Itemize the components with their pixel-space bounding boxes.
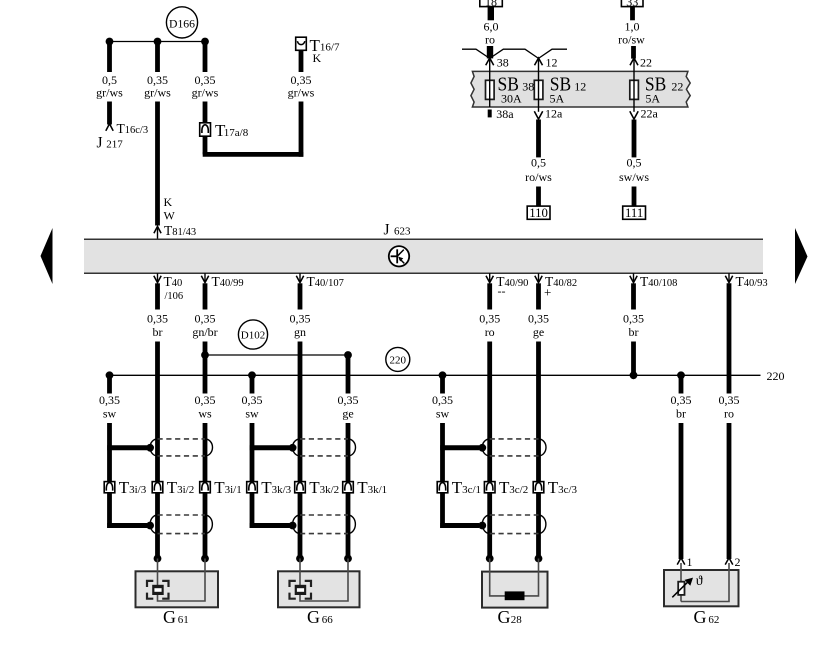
svg-text:/106: /106 <box>165 291 184 302</box>
svg-text:ro: ro <box>485 325 495 339</box>
svg-text:12a: 12a <box>545 107 563 121</box>
svg-text:+: + <box>544 284 551 299</box>
svg-text:T40/108: T40/108 <box>640 274 677 289</box>
svg-text:0,35: 0,35 <box>290 312 311 326</box>
svg-text:gr/ws: gr/ws <box>192 85 219 99</box>
svg-text:1,0: 1,0 <box>625 20 640 34</box>
svg-text:12: 12 <box>574 79 586 93</box>
svg-text:16/7: 16/7 <box>320 42 340 54</box>
svg-text:110: 110 <box>529 206 548 220</box>
svg-text:br: br <box>153 325 163 339</box>
svg-text:J: J <box>384 222 390 239</box>
svg-text:66: 66 <box>322 614 334 626</box>
svg-text:62: 62 <box>708 614 719 626</box>
svg-text:0,35: 0,35 <box>671 393 692 407</box>
svg-text:623: 623 <box>394 226 411 238</box>
svg-text:5A: 5A <box>645 91 660 105</box>
svg-text:38a: 38a <box>496 107 514 121</box>
svg-text:T40/107: T40/107 <box>307 274 344 289</box>
svg-text:220: 220 <box>767 369 785 383</box>
svg-text:0,35: 0,35 <box>479 312 500 326</box>
svg-text:3i/1: 3i/1 <box>225 484 242 496</box>
svg-text:5A: 5A <box>550 91 565 105</box>
svg-text:217: 217 <box>106 139 123 151</box>
svg-text:sw: sw <box>245 407 259 421</box>
svg-text:0,35: 0,35 <box>432 393 453 407</box>
svg-text:T16c/3: T16c/3 <box>117 121 149 136</box>
svg-text:ws: ws <box>198 407 212 421</box>
svg-text:0,35: 0,35 <box>623 312 644 326</box>
svg-text:br: br <box>676 407 686 421</box>
svg-text:sw/ws: sw/ws <box>619 170 649 184</box>
svg-text:ro/sw: ro/sw <box>618 33 645 47</box>
svg-text:gr/ws: gr/ws <box>288 85 315 99</box>
svg-text:G: G <box>163 607 176 627</box>
svg-text:6,0: 6,0 <box>484 20 499 34</box>
svg-text:G: G <box>307 607 320 627</box>
svg-text:12: 12 <box>546 55 558 69</box>
svg-text:gr/ws: gr/ws <box>96 85 123 99</box>
svg-text:0,35: 0,35 <box>99 393 120 407</box>
svg-text:ge: ge <box>342 407 353 421</box>
svg-text:0,35: 0,35 <box>147 312 168 326</box>
svg-text:3c/3: 3c/3 <box>558 484 577 496</box>
svg-text:2: 2 <box>735 555 741 569</box>
svg-text:T81/43: T81/43 <box>164 223 196 238</box>
svg-text:22: 22 <box>671 79 683 93</box>
svg-text:3k/1: 3k/1 <box>368 484 388 496</box>
svg-text:ro: ro <box>485 33 495 47</box>
svg-text:0,35: 0,35 <box>338 393 359 407</box>
svg-text:gr/ws: gr/ws <box>144 85 171 99</box>
svg-text:G: G <box>498 607 511 627</box>
svg-text:D166: D166 <box>169 16 195 30</box>
svg-text:K: K <box>164 195 173 209</box>
svg-text:D102: D102 <box>241 330 265 342</box>
svg-text:0,35: 0,35 <box>195 312 216 326</box>
svg-text:28: 28 <box>511 614 523 626</box>
svg-text:38: 38 <box>522 79 534 93</box>
svg-text:sw: sw <box>103 407 117 421</box>
svg-text:1: 1 <box>687 555 693 569</box>
svg-text:gn: gn <box>294 325 306 339</box>
svg-text:61: 61 <box>178 614 189 626</box>
svg-text:30A: 30A <box>501 91 522 105</box>
svg-text:sw: sw <box>436 407 450 421</box>
svg-text:--: -- <box>498 284 506 298</box>
svg-text:gn/br: gn/br <box>192 325 217 339</box>
svg-text:T40/93: T40/93 <box>736 274 768 289</box>
svg-text:3c/1: 3c/1 <box>462 484 481 496</box>
svg-text:K: K <box>313 51 322 65</box>
svg-text:ge: ge <box>533 325 544 339</box>
svg-text:22a: 22a <box>641 107 659 121</box>
svg-text:220: 220 <box>390 355 407 367</box>
svg-text:ϑ: ϑ <box>696 574 703 589</box>
svg-text:111: 111 <box>625 206 643 220</box>
svg-text:T40: T40 <box>164 274 183 289</box>
svg-text:0,5: 0,5 <box>531 156 546 170</box>
svg-text:0,35: 0,35 <box>528 312 549 326</box>
svg-text:0,35: 0,35 <box>242 393 263 407</box>
svg-text:0,35: 0,35 <box>719 393 740 407</box>
svg-text:3k/2: 3k/2 <box>320 484 340 496</box>
svg-text:ro/ws: ro/ws <box>525 170 552 184</box>
svg-text:G: G <box>694 607 707 627</box>
svg-text:3i/3: 3i/3 <box>129 484 147 496</box>
svg-text:3c/2: 3c/2 <box>509 484 528 496</box>
svg-text:0,35: 0,35 <box>195 393 216 407</box>
svg-text:ro: ro <box>724 407 734 421</box>
svg-text:38: 38 <box>497 55 509 69</box>
svg-text:22: 22 <box>640 55 652 69</box>
svg-text:3i/2: 3i/2 <box>177 484 194 496</box>
svg-text:W: W <box>164 209 176 223</box>
svg-text:br: br <box>629 325 639 339</box>
svg-text:0,5: 0,5 <box>627 156 642 170</box>
svg-text:J: J <box>97 135 103 152</box>
svg-text:T40/99: T40/99 <box>212 274 244 289</box>
svg-text:3k/3: 3k/3 <box>272 484 292 496</box>
svg-text:17a/8: 17a/8 <box>224 127 249 139</box>
